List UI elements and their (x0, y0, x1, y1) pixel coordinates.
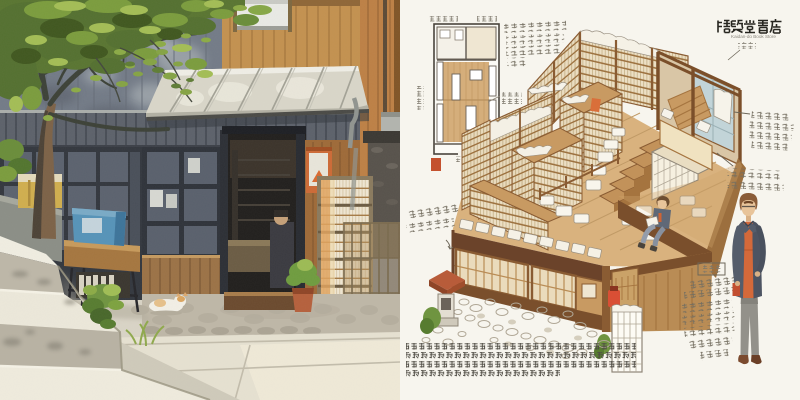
svg-text:Kaidan-do Book Store: Kaidan-do Book Store (731, 34, 776, 39)
